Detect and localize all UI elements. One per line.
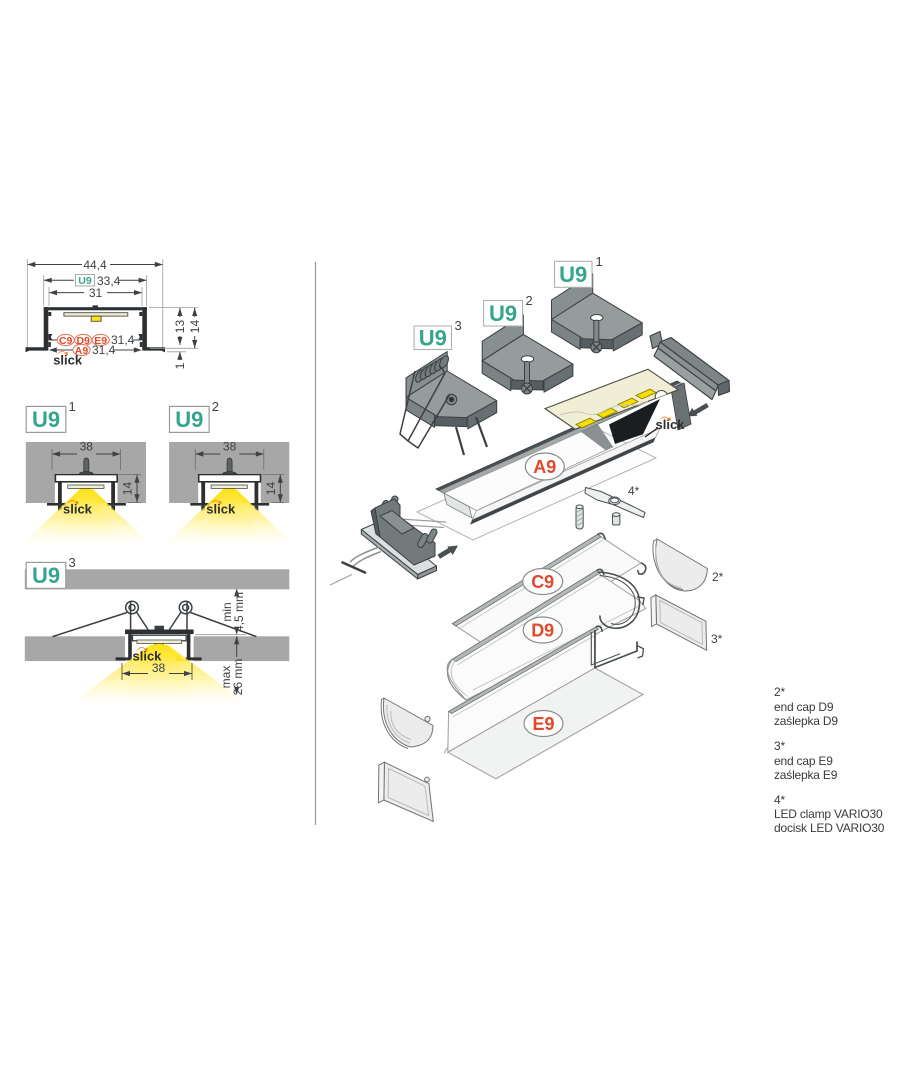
svg-text:2*: 2* — [774, 685, 785, 699]
svg-text:zaślepka D9: zaślepka D9 — [774, 714, 838, 728]
svg-text:14: 14 — [121, 482, 135, 496]
svg-text:3*: 3* — [774, 739, 785, 753]
svg-text:D9: D9 — [531, 621, 554, 641]
svg-text:26 mm: 26 mm — [231, 659, 245, 696]
svg-text:2: 2 — [526, 293, 533, 308]
svg-text:U9: U9 — [175, 407, 203, 432]
svg-text:E9: E9 — [532, 714, 554, 734]
svg-text:A9: A9 — [533, 457, 556, 477]
svg-text:end cap E9: end cap E9 — [774, 754, 833, 768]
svg-text:13: 13 — [173, 320, 187, 334]
svg-text:4*: 4* — [628, 484, 640, 498]
svg-text:U9: U9 — [489, 301, 517, 326]
svg-text:38: 38 — [80, 440, 94, 454]
svg-text:2*: 2* — [712, 570, 724, 584]
svg-text:1: 1 — [596, 254, 603, 269]
svg-text:U9: U9 — [78, 275, 92, 287]
svg-text:1: 1 — [69, 399, 76, 414]
svg-text:U9: U9 — [559, 262, 587, 287]
svg-text:U9: U9 — [32, 407, 60, 432]
svg-text:38: 38 — [223, 440, 237, 454]
svg-text:14: 14 — [264, 482, 278, 496]
svg-text:44,4: 44,4 — [83, 258, 107, 272]
svg-text:U9: U9 — [419, 326, 447, 351]
svg-text:C9: C9 — [59, 335, 73, 347]
svg-text:14: 14 — [188, 320, 202, 334]
svg-text:4*: 4* — [774, 793, 785, 807]
svg-text:31,4: 31,4 — [92, 343, 116, 357]
svg-text:1: 1 — [173, 362, 187, 369]
svg-text:docisk LED VARIO30: docisk LED VARIO30 — [774, 821, 885, 835]
svg-text:3*: 3* — [711, 632, 723, 646]
svg-text:C9: C9 — [531, 572, 554, 592]
svg-text:2: 2 — [212, 399, 219, 414]
svg-text:31: 31 — [89, 286, 103, 300]
svg-text:4,5 mm: 4,5 mm — [232, 592, 246, 632]
svg-text:U9: U9 — [32, 563, 60, 588]
svg-text:3: 3 — [69, 555, 76, 570]
svg-text:end cap D9: end cap D9 — [774, 700, 834, 714]
svg-text:3: 3 — [455, 318, 462, 333]
svg-text:LED clamp VARIO30: LED clamp VARIO30 — [774, 807, 883, 821]
svg-text:zaślepka E9: zaślepka E9 — [774, 768, 838, 782]
